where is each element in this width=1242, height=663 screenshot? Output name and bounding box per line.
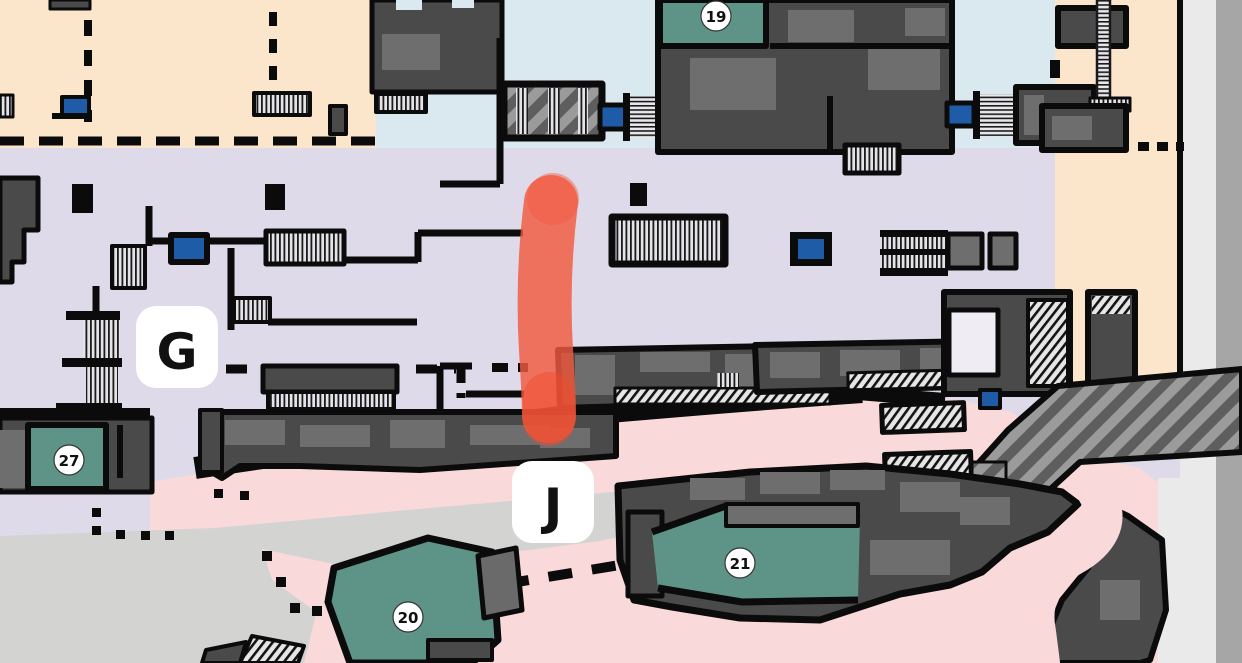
marker-21[interactable]: 21 (725, 548, 755, 578)
elevator-icon (790, 232, 832, 266)
elevator-icon (980, 390, 1000, 408)
marker-20-label: 20 (398, 609, 419, 627)
walkway-hatch (1092, 296, 1130, 314)
floor-map-canvas: G J 19 27 20 21 (0, 0, 1242, 663)
upper-terrace-left (0, 0, 376, 148)
walkway-icon (973, 91, 1016, 139)
east-edge-strip (1216, 0, 1242, 663)
marker-27[interactable]: 27 (54, 445, 84, 475)
stairs-icon (254, 93, 310, 115)
marker-19[interactable]: 19 (701, 1, 731, 31)
marker-21-label: 21 (730, 555, 751, 573)
stairs-icon (845, 145, 899, 173)
walkway-hatch (882, 403, 965, 433)
zone-badge-g[interactable]: G (136, 306, 218, 388)
escalator-icon (880, 230, 1016, 276)
stairs-icon (376, 94, 426, 112)
route-highlight (527, 173, 579, 420)
marker-27-label: 27 (59, 452, 80, 470)
zone-badge-j[interactable]: J (512, 461, 594, 543)
walkway-icon (1097, 0, 1110, 100)
stairs-icon (234, 298, 270, 322)
stairs-icon (612, 217, 725, 264)
escalator-icon (504, 84, 602, 138)
stairs-icon (112, 246, 145, 288)
stairs-icon (0, 95, 13, 117)
marker-19-label: 19 (706, 8, 727, 26)
elevator-icon (947, 103, 974, 126)
zone-divider-band-east (858, 393, 945, 400)
stairs-icon (717, 373, 739, 387)
elevator-icon (171, 235, 207, 262)
walkway-hatch (1028, 300, 1068, 386)
elevator-icon (600, 105, 626, 129)
zone-badge-g-label: G (156, 323, 197, 381)
stairs-icon (266, 231, 344, 264)
marker-20[interactable]: 20 (393, 602, 423, 632)
floor-map: G J 19 27 20 21 (0, 0, 1242, 663)
stairs-icon (268, 392, 394, 409)
zone-badge-j-label: J (541, 478, 563, 536)
